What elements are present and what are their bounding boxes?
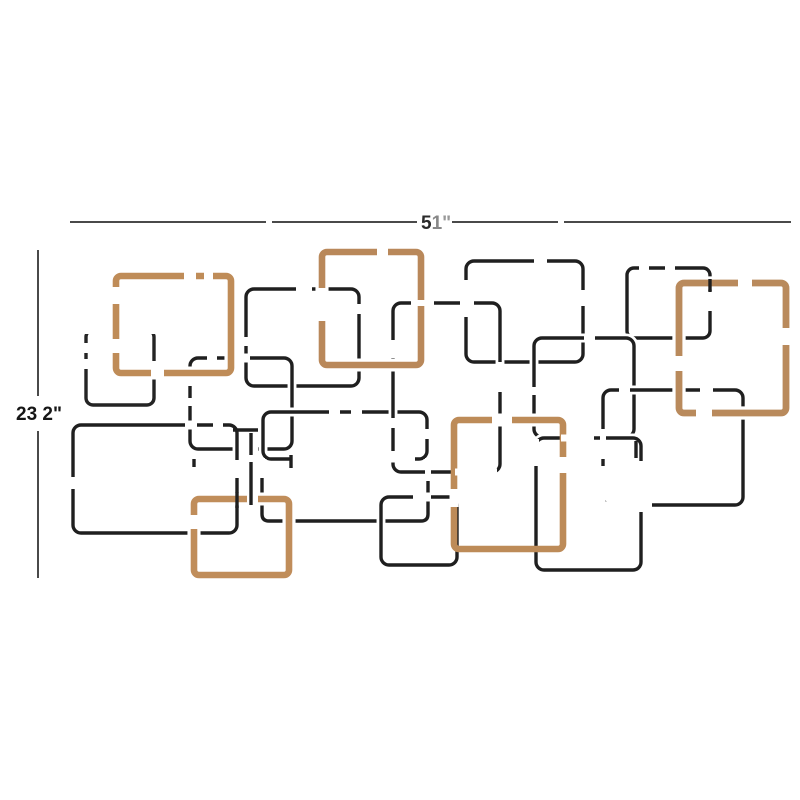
svg-text:23 2": 23 2" [16, 404, 62, 425]
svg-text:51": 51" [421, 213, 451, 234]
